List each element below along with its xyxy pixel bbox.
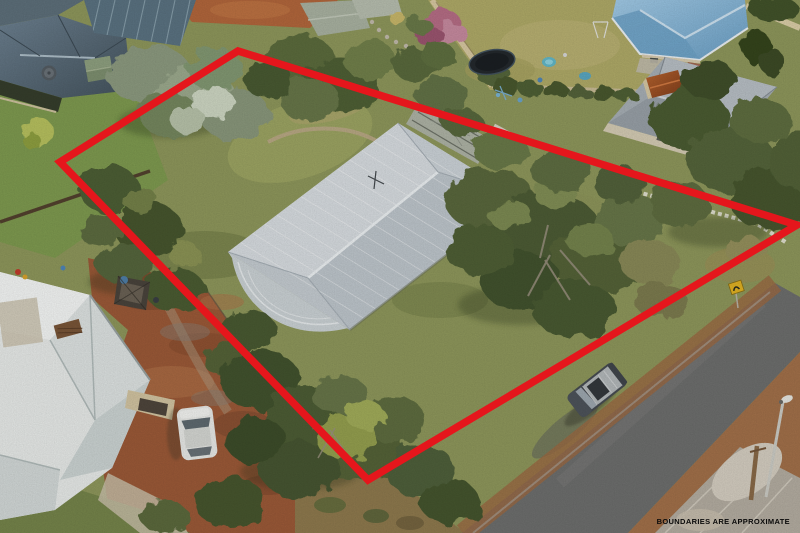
aerial-property-photo: BOUNDARIES ARE APPROXIMATE — [0, 0, 800, 533]
boundaries-disclaimer: BOUNDARIES ARE APPROXIMATE — [657, 517, 790, 526]
photo-grain — [0, 0, 800, 533]
aerial-photo-canvas — [0, 0, 800, 533]
